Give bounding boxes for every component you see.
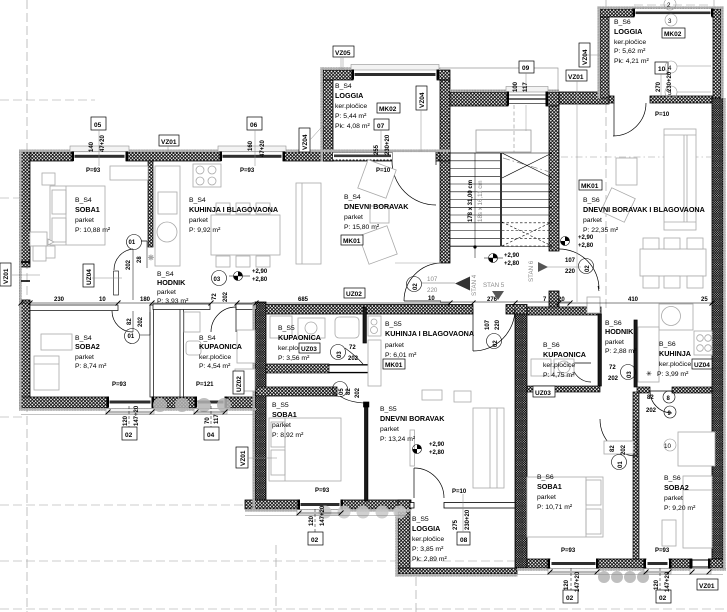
svg-text:SOBA2: SOBA2	[664, 483, 689, 492]
svg-text:02: 02	[659, 595, 667, 602]
svg-text:72: 72	[212, 293, 218, 300]
svg-text:B_S5: B_S5	[272, 402, 289, 409]
svg-text:Pk: 4,21 m²: Pk: 4,21 m²	[614, 58, 649, 65]
svg-text:685: 685	[298, 297, 309, 303]
svg-text:parket: parket	[385, 342, 404, 349]
svg-text:202: 202	[138, 316, 144, 327]
svg-text:82: 82	[647, 395, 654, 401]
svg-text:KUPAONICA: KUPAONICA	[278, 333, 321, 342]
svg-text:VZ04: VZ04	[302, 134, 309, 150]
svg-text:SOBA2: SOBA2	[75, 342, 100, 351]
svg-text:+2,80: +2,80	[429, 450, 445, 456]
svg-text:UZ04: UZ04	[694, 362, 710, 369]
svg-text:B_S5: B_S5	[380, 406, 397, 413]
svg-text:P=10: P=10	[376, 168, 391, 174]
svg-text:230: 230	[54, 297, 65, 303]
svg-text:P: 10,71 m²: P: 10,71 m²	[537, 504, 573, 511]
svg-text:SOBA1: SOBA1	[75, 205, 100, 214]
svg-text:+2,80: +2,80	[504, 261, 520, 267]
svg-text:ker.pločice: ker.pločice	[614, 39, 646, 46]
svg-text:02: 02	[585, 265, 591, 272]
svg-text:KUPAONICA: KUPAONICA	[199, 342, 242, 351]
svg-text:B_S4: B_S4	[344, 194, 361, 201]
svg-text:107: 107	[565, 258, 576, 264]
svg-text:+2,90: +2,90	[429, 442, 445, 448]
svg-text:P: 6,01 m²: P: 6,01 m²	[385, 352, 417, 359]
svg-text:147+20: 147+20	[134, 405, 140, 426]
svg-text:parket: parket	[157, 289, 176, 296]
svg-text:KUPAONICA: KUPAONICA	[543, 350, 586, 359]
svg-text:18s x 16,11 cm: 18s x 16,11 cm	[477, 181, 484, 223]
svg-text:09: 09	[522, 65, 530, 72]
svg-text:+2,90: +2,90	[578, 235, 594, 241]
svg-text:UZ03: UZ03	[301, 346, 317, 353]
svg-text:01: 01	[618, 461, 624, 468]
svg-text:P=121: P=121	[196, 382, 214, 388]
svg-text:202: 202	[608, 376, 619, 382]
svg-text:+2,90: +2,90	[504, 253, 520, 259]
svg-text:72: 72	[609, 365, 616, 371]
svg-text:07: 07	[377, 123, 385, 130]
svg-text:parket: parket	[605, 339, 624, 346]
svg-text:10: 10	[99, 297, 106, 303]
svg-text:parket: parket	[583, 217, 602, 224]
svg-text:255: 255	[374, 144, 380, 155]
svg-text:P: 4,75 m²: P: 4,75 m²	[543, 372, 575, 379]
svg-text:DNEVNI BORAVAK I BLAGOVAONA: DNEVNI BORAVAK I BLAGOVAONA	[583, 205, 705, 214]
svg-text:82: 82	[346, 388, 352, 395]
svg-text:02: 02	[493, 340, 499, 347]
svg-text:117: 117	[214, 414, 220, 424]
svg-text:KUHINJA I BLAGOVAONA: KUHINJA I BLAGOVAONA	[385, 329, 474, 338]
svg-text:+2,80: +2,80	[578, 243, 594, 249]
svg-text:Pk: 2,89 m²: Pk: 2,89 m²	[412, 556, 447, 563]
svg-text:P: 5,44 m²: P: 5,44 m²	[335, 113, 367, 120]
svg-text:P: 10,88 m²: P: 10,88 m²	[75, 227, 111, 234]
svg-text:P: 8,92 m²: P: 8,92 m²	[272, 432, 304, 439]
svg-text:parket: parket	[380, 426, 399, 433]
svg-text:P: 9,92 m²: P: 9,92 m²	[189, 227, 221, 234]
svg-text:220: 220	[427, 287, 438, 294]
svg-text:230+20: 230+20	[667, 71, 673, 92]
svg-text:P: 5,62 m²: P: 5,62 m²	[614, 48, 646, 55]
svg-text:03: 03	[627, 371, 633, 378]
svg-text:410: 410	[628, 297, 639, 303]
svg-text:P: 3,56 m²: P: 3,56 m²	[278, 355, 310, 362]
svg-text:DNEVNI BORAVAK: DNEVNI BORAVAK	[380, 414, 445, 423]
svg-text:STAN 5: STAN 5	[483, 282, 505, 289]
svg-text:B_S6: B_S6	[537, 474, 554, 481]
svg-text:VZ01: VZ01	[161, 139, 177, 146]
svg-text:160: 160	[248, 140, 254, 151]
svg-text:202: 202	[126, 259, 132, 270]
svg-text:47+20: 47+20	[100, 134, 106, 152]
svg-text:230+20: 230+20	[385, 134, 391, 155]
svg-text:P=93: P=93	[655, 548, 670, 554]
svg-text:KUHINJA I BLAGOVAONA: KUHINJA I BLAGOVAONA	[189, 205, 278, 214]
svg-text:UZ02: UZ02	[346, 291, 362, 298]
svg-text:ker.pločice: ker.pločice	[543, 362, 575, 369]
svg-text:MK01: MK01	[343, 238, 361, 245]
svg-text:parket: parket	[344, 214, 363, 221]
svg-text:MK01: MK01	[581, 183, 599, 190]
svg-text:STAN 6: STAN 6	[528, 260, 535, 282]
svg-text:2: 2	[667, 2, 671, 9]
svg-text:VZ01: VZ01	[240, 450, 247, 466]
svg-text:MK02: MK02	[664, 31, 682, 38]
svg-text:LOGGIA: LOGGIA	[614, 27, 642, 36]
svg-text:VZ01: VZ01	[568, 74, 584, 81]
svg-text:70: 70	[205, 417, 211, 424]
svg-text:107: 107	[485, 319, 491, 330]
svg-text:100: 100	[513, 81, 519, 92]
svg-text:P=93: P=93	[86, 168, 101, 174]
svg-text:B_S5: B_S5	[385, 321, 402, 328]
svg-text:P: 4,54 m²: P: 4,54 m²	[199, 363, 231, 370]
svg-text:SOBA1: SOBA1	[537, 482, 562, 491]
svg-text:B_S4: B_S4	[157, 271, 174, 278]
svg-text:B_S6: B_S6	[664, 475, 681, 482]
svg-text:P=93: P=93	[112, 382, 127, 388]
svg-text:UZ02: UZ02	[236, 376, 243, 392]
svg-text:B_S6: B_S6	[543, 342, 560, 349]
svg-text:10: 10	[428, 296, 435, 302]
svg-text:120: 120	[654, 579, 660, 590]
svg-text:MK01: MK01	[385, 362, 403, 369]
svg-text:P=93: P=93	[561, 548, 576, 554]
svg-text:B_S4: B_S4	[75, 335, 92, 342]
svg-text:120: 120	[564, 579, 570, 590]
svg-text:B_S6: B_S6	[583, 197, 600, 204]
svg-text:✳: ✳	[148, 254, 154, 262]
svg-text:04: 04	[207, 432, 215, 439]
svg-text:06: 06	[250, 122, 258, 129]
svg-text:B_S6: B_S6	[605, 320, 622, 327]
svg-text:P: 15,80 m²: P: 15,80 m²	[344, 224, 380, 231]
svg-text:LOGGIA: LOGGIA	[335, 91, 363, 100]
svg-text:P: 2,88 m²: P: 2,88 m²	[605, 348, 637, 355]
svg-text:230+20: 230+20	[465, 509, 471, 530]
svg-text:P: 8,74 m²: P: 8,74 m²	[75, 363, 107, 370]
svg-text:01: 01	[129, 240, 136, 246]
svg-text:02: 02	[566, 595, 574, 602]
svg-text:P: 3,99 m²: P: 3,99 m²	[657, 371, 689, 378]
svg-text:Pk: 4,08 m²: Pk: 4,08 m²	[335, 123, 370, 130]
svg-text:02: 02	[311, 537, 319, 544]
svg-text:parket: parket	[189, 217, 208, 224]
svg-text:parket: parket	[75, 217, 94, 224]
svg-text:107: 107	[427, 276, 438, 283]
svg-text:05: 05	[339, 388, 345, 395]
svg-text:B_S4: B_S4	[335, 83, 352, 90]
svg-text:LOGGIA: LOGGIA	[412, 524, 440, 533]
svg-text:VZ04: VZ04	[419, 92, 426, 108]
svg-text:10: 10	[664, 443, 671, 450]
svg-text:01: 01	[128, 334, 135, 340]
svg-text:25: 25	[701, 297, 708, 303]
svg-text:178 x 31,00 cm: 178 x 31,00 cm	[468, 180, 474, 222]
svg-text:B_S6: B_S6	[614, 19, 631, 26]
svg-text:02: 02	[125, 432, 133, 439]
svg-text:B_S4: B_S4	[199, 335, 216, 342]
svg-text:202: 202	[355, 387, 361, 398]
svg-text:82: 82	[610, 445, 616, 452]
svg-text:P=10: P=10	[655, 112, 670, 118]
svg-text:03: 03	[337, 351, 343, 358]
svg-text:P: 22,35 m²: P: 22,35 m²	[583, 227, 619, 234]
svg-text:parket: parket	[664, 495, 683, 502]
svg-text:202: 202	[223, 291, 229, 302]
svg-text:VZ01: VZ01	[699, 583, 715, 590]
svg-text:B_S6: B_S6	[659, 341, 676, 348]
svg-text:SOBA1: SOBA1	[272, 410, 297, 419]
svg-text:120: 120	[123, 415, 129, 426]
svg-text:P=93: P=93	[240, 168, 255, 174]
svg-text:B_S4: B_S4	[189, 197, 206, 204]
svg-text:parket: parket	[75, 354, 94, 361]
svg-text:28: 28	[137, 256, 143, 263]
svg-text:P: 3,93 m²: P: 3,93 m²	[157, 298, 189, 305]
svg-text:STAN 4: STAN 4	[471, 274, 478, 296]
svg-text:ker.pločice: ker.pločice	[412, 536, 444, 543]
svg-text:P=93: P=93	[315, 488, 330, 494]
svg-text:05: 05	[94, 122, 102, 129]
svg-text:P: 9,20 m²: P: 9,20 m²	[664, 505, 696, 512]
svg-text:B_S5: B_S5	[278, 325, 295, 332]
svg-text:202: 202	[348, 356, 359, 362]
svg-text:HODNIK: HODNIK	[157, 278, 186, 287]
svg-text:KUHINJA: KUHINJA	[659, 349, 691, 358]
svg-text:47+20: 47+20	[260, 139, 266, 157]
svg-text:275: 275	[453, 519, 459, 530]
svg-text:3: 3	[668, 18, 672, 25]
svg-text:DNEVNI BORAVAK: DNEVNI BORAVAK	[344, 202, 409, 211]
svg-text:UZ04: UZ04	[86, 269, 93, 285]
svg-text:P: 3,85 m²: P: 3,85 m²	[412, 546, 444, 553]
svg-text:220: 220	[565, 269, 576, 275]
svg-text:P: 13,24 m²: P: 13,24 m²	[380, 436, 416, 443]
svg-text:✳: ✳	[646, 370, 652, 378]
svg-text:72: 72	[349, 345, 356, 351]
svg-text:MK02: MK02	[379, 106, 397, 113]
svg-text:+2,90: +2,90	[252, 269, 268, 275]
svg-text:03: 03	[214, 277, 221, 283]
svg-text:+2,80: +2,80	[252, 277, 268, 283]
svg-text:HODNIK: HODNIK	[605, 327, 634, 336]
svg-text:202: 202	[621, 444, 627, 455]
svg-text:B_S4: B_S4	[75, 197, 92, 204]
svg-text:VZ01: VZ01	[3, 268, 10, 284]
svg-text:120: 120	[309, 515, 315, 526]
svg-text:10: 10	[658, 66, 666, 73]
svg-text:P=10: P=10	[452, 489, 467, 495]
svg-text:202: 202	[646, 408, 657, 414]
svg-text:180: 180	[140, 297, 151, 303]
svg-text:parket: parket	[272, 422, 291, 429]
svg-text:ker.pločice: ker.pločice	[335, 103, 367, 110]
svg-text:02: 02	[413, 283, 419, 290]
svg-text:ker.pločice: ker.pločice	[199, 354, 231, 361]
svg-text:220: 220	[495, 319, 501, 330]
svg-text:4: 4	[668, 65, 672, 72]
svg-text:140: 140	[89, 141, 95, 152]
svg-text:ker.pločice: ker.pločice	[659, 361, 691, 368]
svg-text:82: 82	[127, 318, 133, 325]
svg-text:08: 08	[460, 537, 468, 544]
svg-text:VZ04: VZ04	[582, 49, 589, 65]
svg-text:UZ03: UZ03	[535, 390, 551, 397]
svg-text:VZ05: VZ05	[335, 50, 351, 57]
svg-text:B_S5: B_S5	[412, 516, 429, 523]
svg-text:parket: parket	[537, 494, 556, 501]
